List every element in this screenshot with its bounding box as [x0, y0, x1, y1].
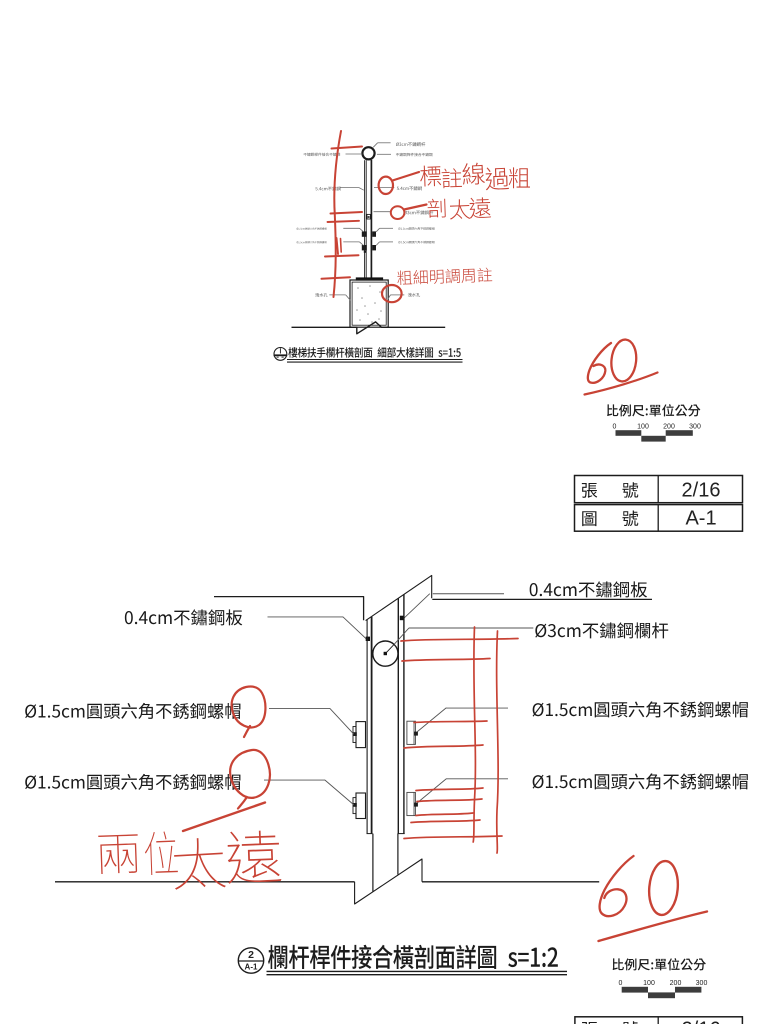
svg-text:300: 300 — [689, 423, 701, 430]
svg-text:2: 2 — [248, 949, 254, 961]
svg-text:300: 300 — [696, 980, 708, 987]
svg-text:A-1: A-1 — [245, 963, 258, 972]
svg-text:A-1: A-1 — [685, 508, 716, 530]
svg-text:100: 100 — [637, 423, 649, 430]
svg-text:100: 100 — [643, 980, 655, 987]
svg-text:2/16: 2/16 — [682, 479, 721, 501]
svg-text:2/16: 2/16 — [682, 1018, 721, 1024]
svg-text:0: 0 — [619, 980, 623, 987]
svg-text:0: 0 — [613, 423, 617, 430]
svg-text:200: 200 — [663, 423, 675, 430]
svg-text:200: 200 — [670, 980, 682, 987]
